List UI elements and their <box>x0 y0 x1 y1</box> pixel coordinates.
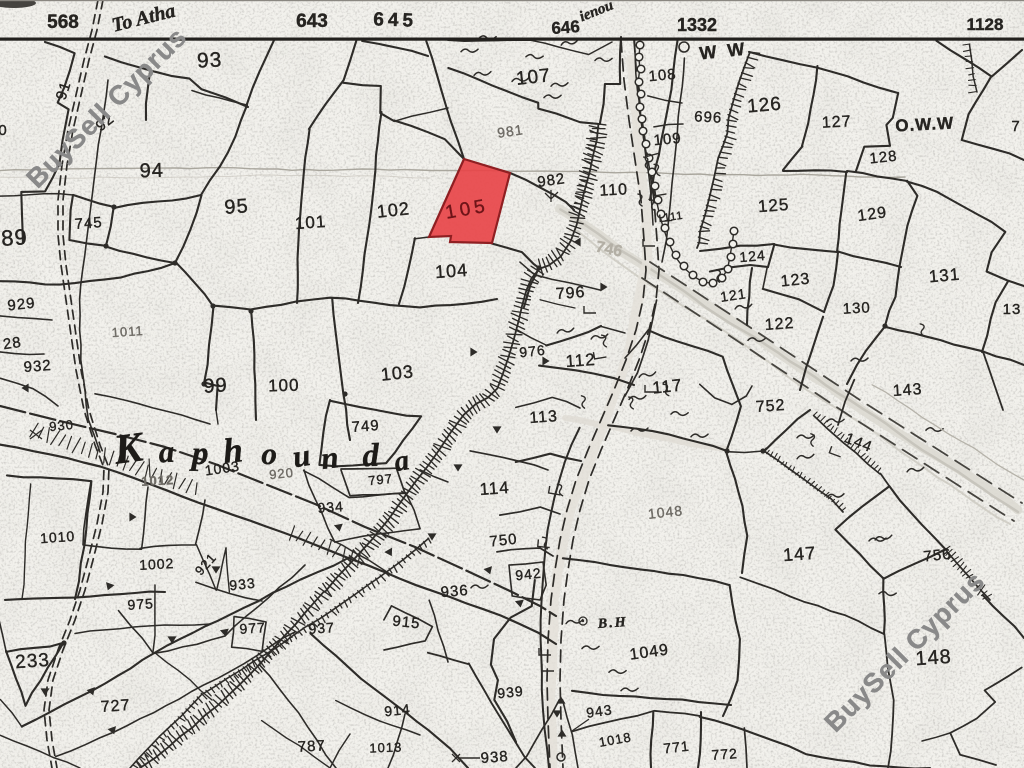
svg-text:B.H: B.H <box>596 615 628 632</box>
svg-text:102: 102 <box>376 198 411 221</box>
svg-text:124: 124 <box>739 247 767 265</box>
svg-text:568: 568 <box>47 12 79 33</box>
svg-text:112: 112 <box>565 350 596 371</box>
svg-text:0: 0 <box>0 122 8 139</box>
svg-text:1013: 1013 <box>369 739 402 755</box>
svg-text:646: 646 <box>551 17 581 38</box>
svg-text:643: 643 <box>296 11 328 32</box>
svg-text:1128: 1128 <box>967 15 1004 34</box>
svg-text:107: 107 <box>515 65 552 90</box>
svg-text:147: 147 <box>782 543 816 565</box>
svg-text:915: 915 <box>392 613 422 633</box>
svg-text:99: 99 <box>203 374 229 398</box>
svg-text:942: 942 <box>515 565 543 584</box>
svg-text:109: 109 <box>653 130 682 149</box>
svg-text:100: 100 <box>268 375 300 395</box>
svg-text:930: 930 <box>48 417 74 435</box>
svg-text:117: 117 <box>651 376 683 398</box>
svg-text:772: 772 <box>711 745 738 763</box>
svg-text:929: 929 <box>7 295 37 315</box>
svg-text:114: 114 <box>479 478 510 499</box>
svg-text:122: 122 <box>764 315 795 334</box>
svg-text:771: 771 <box>663 738 691 757</box>
svg-text:104: 104 <box>434 260 468 282</box>
svg-text:975: 975 <box>127 595 154 613</box>
svg-text:143: 143 <box>892 381 923 400</box>
svg-text:787: 787 <box>297 737 326 755</box>
svg-text:977: 977 <box>239 619 266 637</box>
svg-text:976: 976 <box>519 342 547 361</box>
svg-text:d: d <box>362 438 380 475</box>
svg-text:7: 7 <box>1011 118 1020 135</box>
svg-text:p: p <box>189 436 209 472</box>
svg-text:696: 696 <box>694 108 723 126</box>
svg-text:745: 745 <box>74 214 103 233</box>
svg-text:914: 914 <box>384 701 412 720</box>
svg-text:103: 103 <box>380 361 415 384</box>
svg-text:95: 95 <box>224 195 250 219</box>
svg-text:750: 750 <box>489 531 519 551</box>
svg-text:130: 130 <box>842 299 871 317</box>
svg-text:h: h <box>222 430 245 471</box>
svg-text:O.W.W: O.W.W <box>895 113 955 135</box>
svg-text:101: 101 <box>294 212 327 233</box>
svg-text:o: o <box>261 436 277 471</box>
svg-text:110: 110 <box>599 181 628 199</box>
svg-text:796: 796 <box>555 284 586 303</box>
svg-text:756: 756 <box>923 546 953 566</box>
svg-text:645: 645 <box>373 9 417 32</box>
svg-text:89: 89 <box>0 224 28 251</box>
svg-text:1012: 1012 <box>141 472 175 489</box>
svg-text:28: 28 <box>2 334 23 353</box>
svg-text:936: 936 <box>440 582 469 601</box>
svg-text:93: 93 <box>196 48 223 72</box>
svg-text:749: 749 <box>351 417 380 436</box>
svg-text:1010: 1010 <box>40 528 76 546</box>
svg-text:123: 123 <box>780 271 811 291</box>
svg-text:939: 939 <box>497 683 525 702</box>
svg-text:932: 932 <box>23 357 52 376</box>
svg-text:727: 727 <box>100 697 131 716</box>
svg-text:a: a <box>158 434 176 470</box>
svg-text:937: 937 <box>308 619 335 637</box>
svg-text:13: 13 <box>1003 301 1022 318</box>
svg-text:752: 752 <box>755 397 786 416</box>
svg-text:113: 113 <box>529 408 559 427</box>
svg-text:131: 131 <box>928 265 961 287</box>
svg-text:94: 94 <box>139 160 164 183</box>
svg-text:128: 128 <box>869 148 899 168</box>
svg-text:938: 938 <box>480 748 509 767</box>
svg-text:1002: 1002 <box>139 555 175 573</box>
svg-text:1332: 1332 <box>677 15 717 35</box>
svg-text:933: 933 <box>229 575 257 594</box>
svg-text:934: 934 <box>317 498 344 516</box>
svg-text:1011: 1011 <box>111 323 144 340</box>
svg-text:108: 108 <box>648 66 677 85</box>
svg-text:127: 127 <box>821 113 852 132</box>
svg-text:125: 125 <box>757 195 790 216</box>
svg-text:233: 233 <box>15 650 51 673</box>
svg-text:126: 126 <box>746 94 782 118</box>
